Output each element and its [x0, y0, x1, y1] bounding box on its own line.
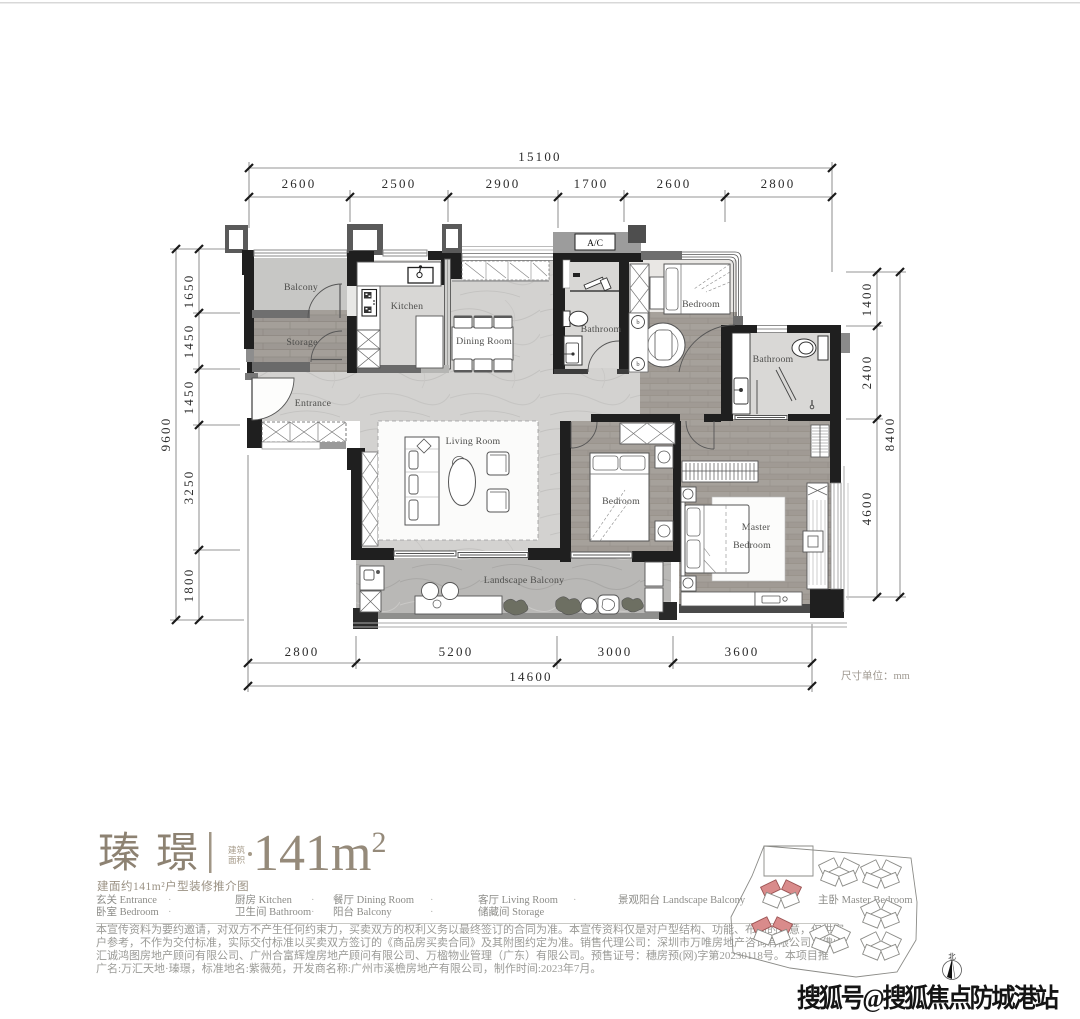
svg-text:广名:万汇天地·瑧璟，标准地名:紫薇苑，开发商名称:广州市溪: 广名:万汇天地·瑧璟，标准地名:紫薇苑，开发商名称:广州市溪檐房地产有限公司，制…	[96, 961, 601, 975]
svg-text:景观阳台 Landscape Balcony: 景观阳台 Landscape Balcony	[618, 893, 746, 906]
svg-text:Master: Master	[742, 522, 771, 533]
svg-text:阳台 Balcony: 阳台 Balcony	[333, 905, 392, 918]
svg-text:玄关 Entrance: 玄关 Entrance	[96, 893, 157, 906]
svg-text:1800: 1800	[181, 568, 196, 603]
svg-text:·: ·	[430, 907, 434, 918]
svg-text:·: ·	[168, 895, 172, 906]
svg-text:·: ·	[311, 895, 315, 906]
svg-text:2800: 2800	[285, 644, 320, 659]
svg-text:Bedroom: Bedroom	[602, 496, 640, 507]
svg-text:建筑: 建筑	[228, 845, 246, 855]
svg-text:14600: 14600	[509, 669, 553, 684]
svg-text:·: ·	[311, 907, 315, 918]
svg-text:主卧 Master Bedroom: 主卧 Master Bedroom	[818, 893, 913, 906]
svg-text:搜狐号@搜狐焦点防城港站: 搜狐号@搜狐焦点防城港站	[797, 983, 1059, 1013]
svg-text:·: ·	[168, 907, 172, 918]
svg-text:餐厅 Dining Room: 餐厅 Dining Room	[333, 893, 414, 906]
svg-text:1400: 1400	[859, 282, 874, 317]
svg-text:尺寸单位：mm: 尺寸单位：mm	[841, 669, 910, 682]
svg-text:Balcony: Balcony	[284, 282, 318, 293]
svg-text:A/C: A/C	[587, 239, 603, 249]
svg-text:1450: 1450	[181, 324, 196, 359]
svg-text:Bathroom: Bathroom	[581, 324, 622, 335]
svg-text:2900: 2900	[486, 176, 521, 191]
svg-text:厨房 Kitchen: 厨房 Kitchen	[235, 893, 293, 906]
svg-text:2400: 2400	[859, 355, 874, 390]
svg-text:北: 北	[948, 952, 956, 961]
svg-text:Dining Room: Dining Room	[456, 336, 512, 347]
svg-text:1700: 1700	[574, 176, 609, 191]
svg-text:卫生间 Bathroom: 卫生间 Bathroom	[235, 905, 311, 918]
svg-text:9600: 9600	[158, 417, 173, 452]
svg-text:1450: 1450	[181, 380, 196, 415]
svg-text:141m2: 141m2	[253, 825, 386, 882]
svg-text:·: ·	[430, 895, 434, 906]
svg-text:卧室 Bedroom: 卧室 Bedroom	[96, 905, 159, 918]
svg-text:b: b	[636, 319, 639, 326]
svg-text:15100: 15100	[518, 149, 562, 164]
svg-text:Landscape Balcony: Landscape Balcony	[484, 575, 564, 586]
svg-text:5200: 5200	[439, 644, 474, 659]
svg-text:1650: 1650	[181, 274, 196, 309]
svg-text:建面约141m²户型装修推介图: 建面约141m²户型装修推介图	[97, 879, 249, 893]
svg-text:Entrance: Entrance	[295, 398, 332, 409]
svg-text:4600: 4600	[859, 491, 874, 526]
svg-text:储藏间 Storage: 储藏间 Storage	[478, 905, 545, 918]
svg-text:8400: 8400	[882, 417, 897, 452]
svg-text:客厅 Living Room: 客厅 Living Room	[478, 893, 558, 906]
svg-text:Bedroom: Bedroom	[733, 540, 771, 551]
svg-text:2800: 2800	[761, 176, 796, 191]
svg-text:Storage: Storage	[286, 337, 318, 348]
svg-text:Living Room: Living Room	[446, 436, 501, 447]
svg-text:Bathroom: Bathroom	[753, 354, 794, 365]
svg-text:3600: 3600	[725, 644, 760, 659]
svg-text:2600: 2600	[282, 176, 317, 191]
svg-text:3000: 3000	[598, 644, 633, 659]
svg-text:2500: 2500	[382, 176, 417, 191]
svg-text:·: ·	[573, 895, 577, 906]
svg-text:汇诚鸿图房地产顾问有限公司、广州合富辉煌房地产顾问有限公司、: 汇诚鸿图房地产顾问有限公司、广州合富辉煌房地产顾问有限公司、万楹物业管理（广东）…	[96, 948, 829, 962]
svg-text:Bedroom: Bedroom	[682, 299, 720, 310]
svg-text:面积: 面积	[228, 855, 246, 865]
svg-text:瑧璟: 瑧璟	[98, 831, 214, 877]
svg-text:Kitchen: Kitchen	[391, 301, 423, 312]
svg-text:2600: 2600	[657, 176, 692, 191]
svg-text:3250: 3250	[181, 470, 196, 505]
svg-text:b: b	[636, 361, 639, 368]
